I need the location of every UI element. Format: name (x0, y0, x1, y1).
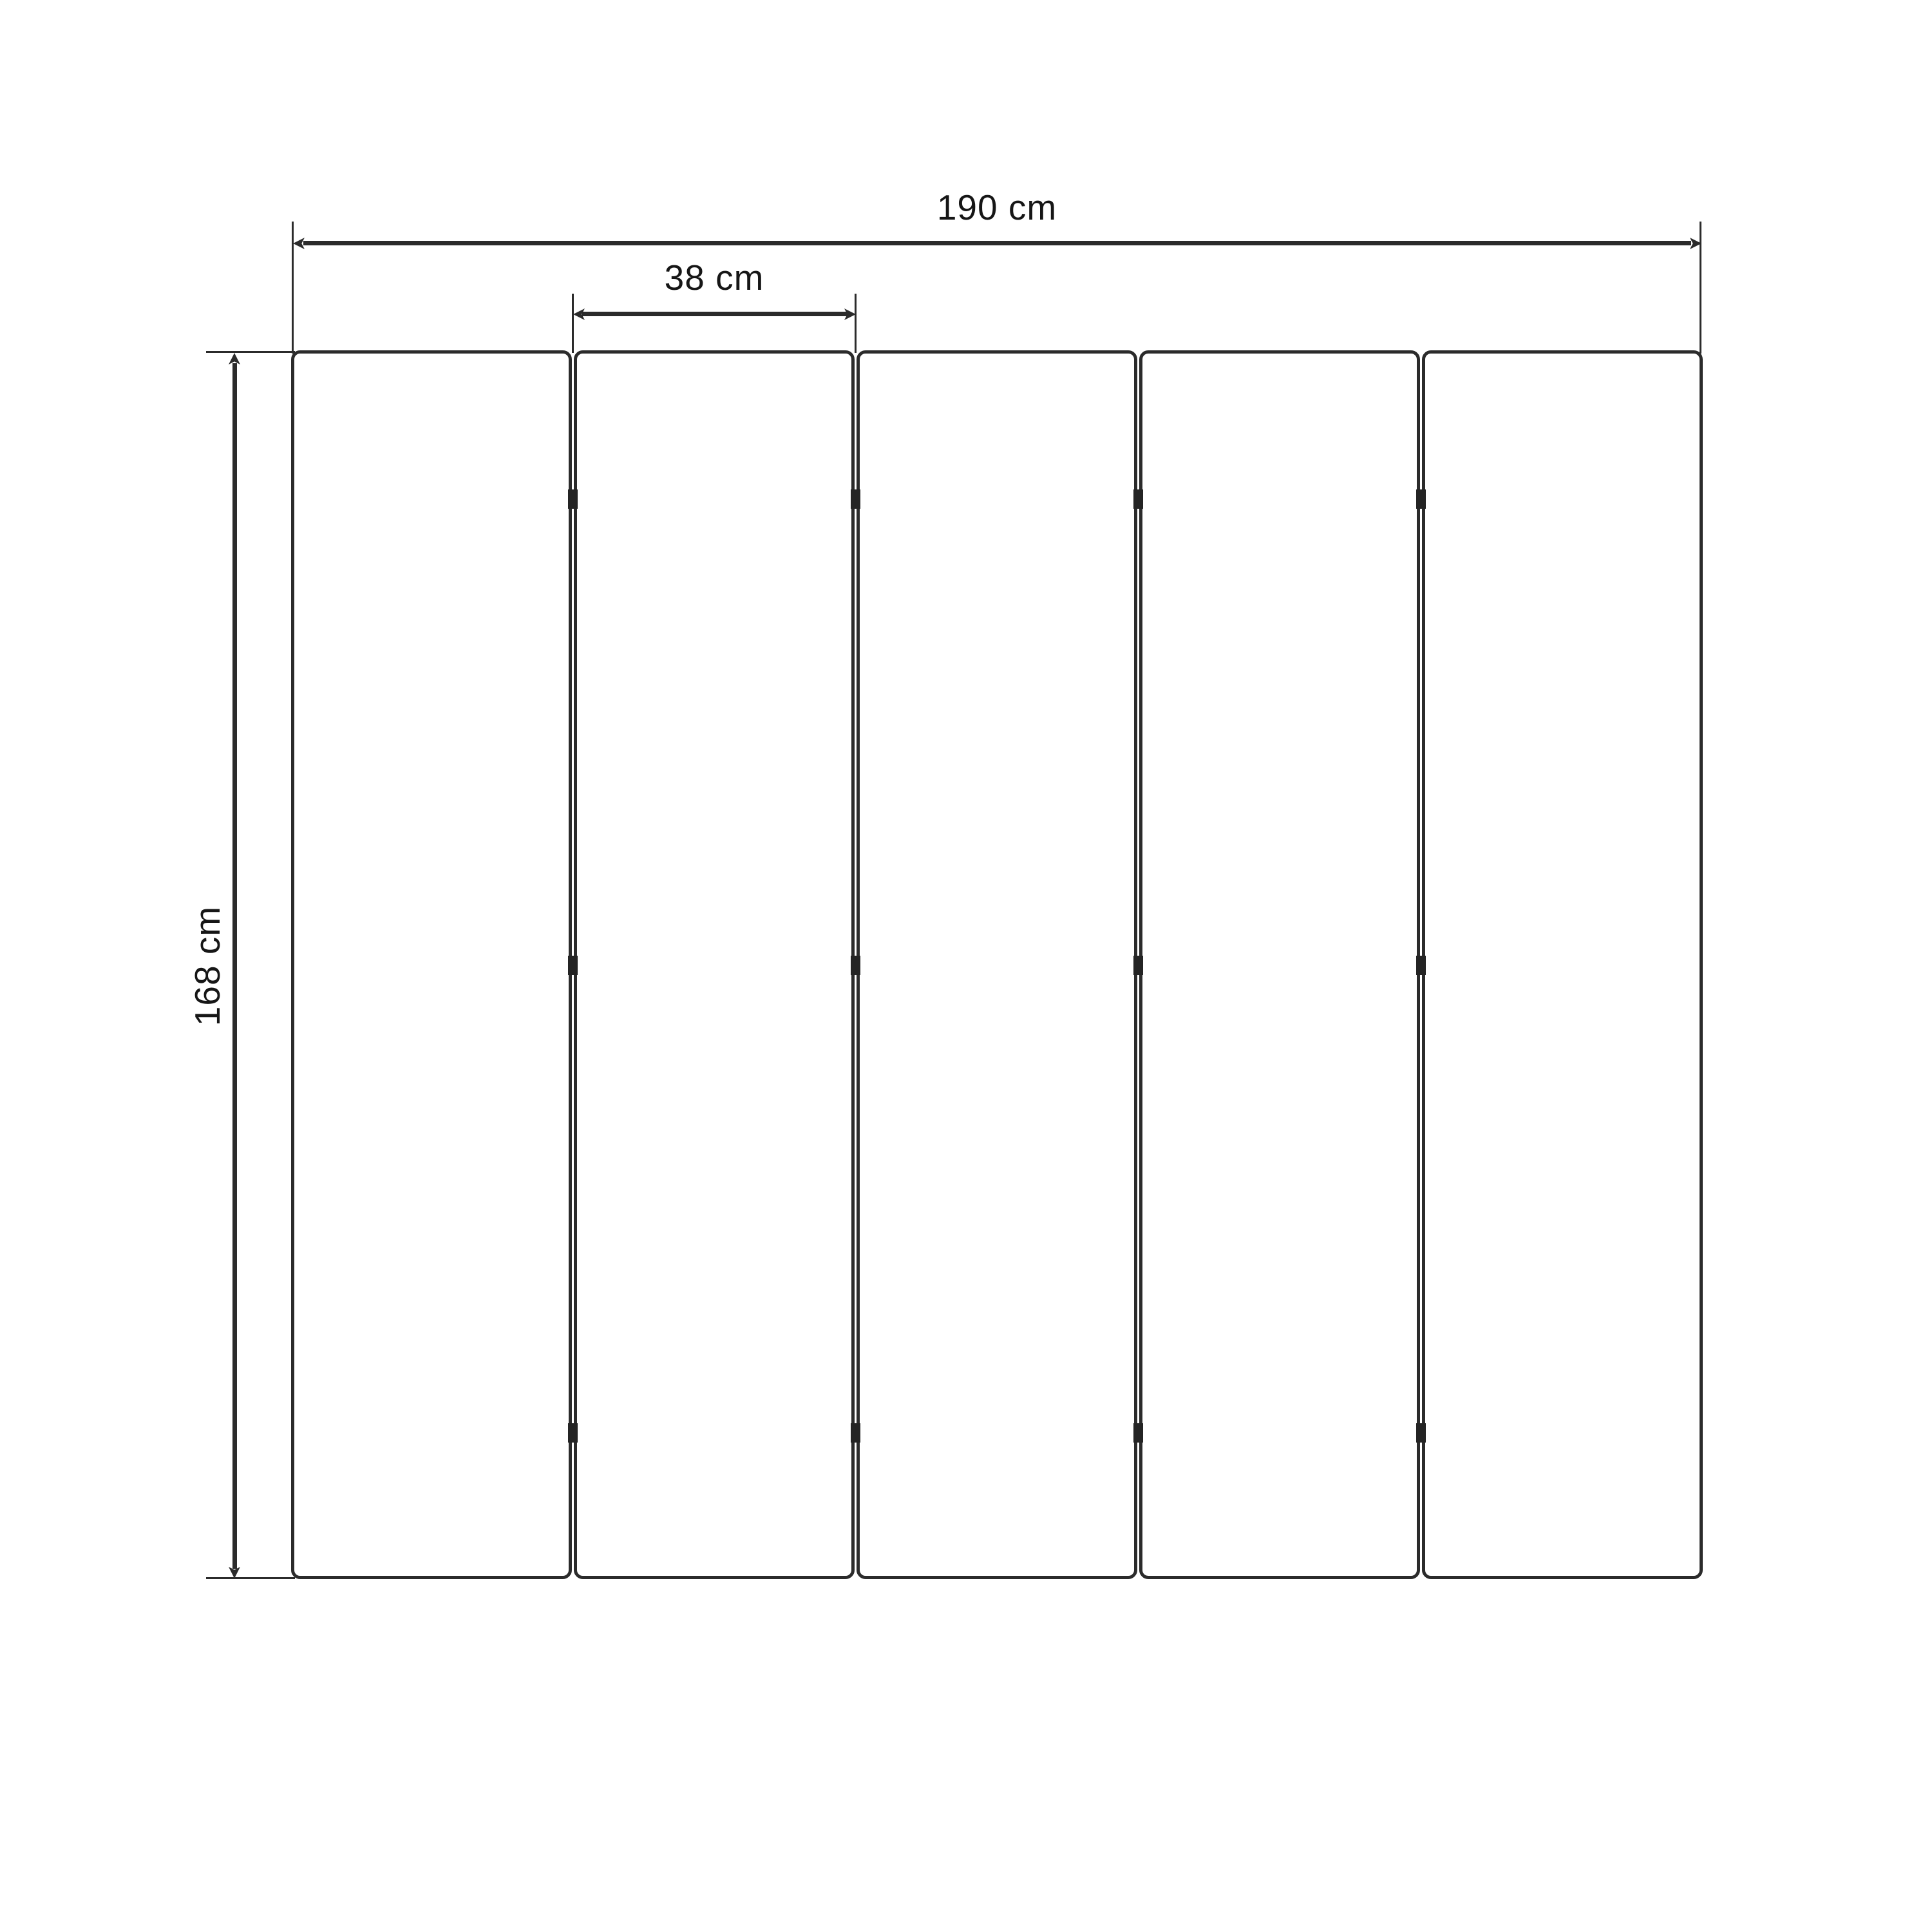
panel-5 (1422, 350, 1703, 1579)
hinge (1416, 489, 1426, 509)
panel-3 (857, 350, 1137, 1579)
extension-line (572, 294, 574, 353)
hinge (1416, 1423, 1426, 1443)
hinge (851, 956, 860, 975)
panel-width-label: 38 cm (665, 260, 764, 296)
hinge (568, 956, 578, 975)
hinge (851, 1423, 860, 1443)
dimension-line (232, 363, 237, 1569)
extension-line (855, 294, 857, 353)
total-width-label: 190 cm (937, 189, 1057, 225)
extension-line (292, 222, 294, 354)
dimension-line (303, 241, 1691, 245)
panel-1 (291, 350, 572, 1579)
extension-line (206, 351, 295, 353)
height-label: 168 cm (189, 906, 225, 1026)
dimension-diagram: 190 cm 38 cm 168 cm (0, 0, 1932, 1932)
hinge (1416, 956, 1426, 975)
hinge (568, 1423, 578, 1443)
hinge (568, 489, 578, 509)
panel-2 (574, 350, 855, 1579)
hinge (1133, 489, 1143, 509)
hinge (1133, 1423, 1143, 1443)
extension-line (1700, 222, 1701, 354)
panel-4 (1139, 350, 1420, 1579)
dimension-line (582, 312, 848, 316)
hinge (1133, 956, 1143, 975)
hinge (851, 489, 860, 509)
extension-line (206, 1577, 295, 1579)
